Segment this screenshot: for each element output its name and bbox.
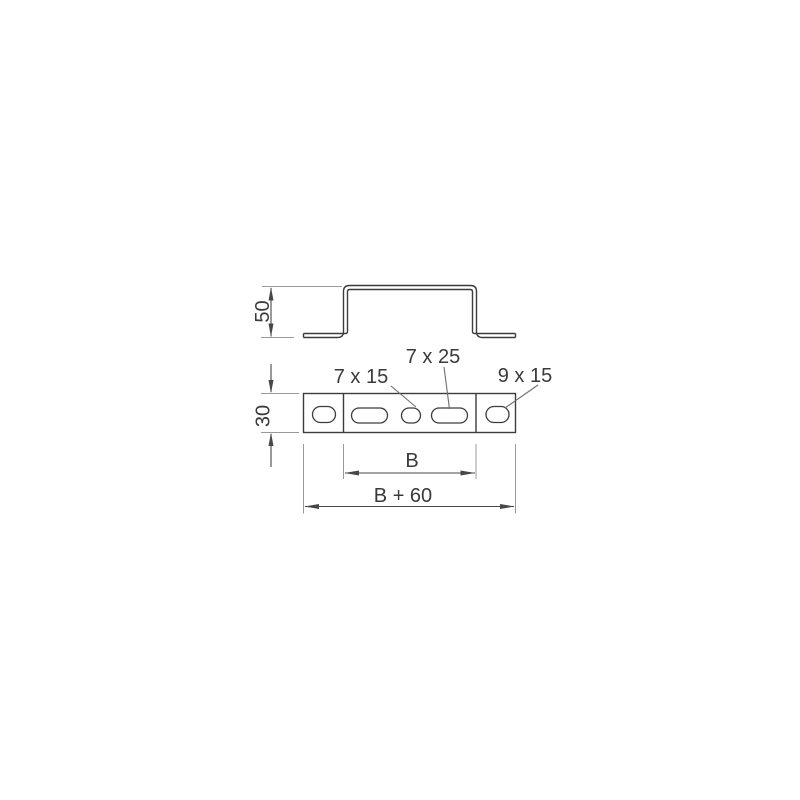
b60-dimension-label: B + 60 [374, 485, 432, 507]
b-arrow-right [461, 471, 476, 476]
drawing-canvas: 50 30 7 x 15 7 x 25 [0, 0, 800, 800]
profile-inner-contour [304, 290, 516, 334]
flange-arrow-up [269, 433, 274, 446]
small-slot-label: 7 x 15 [334, 366, 388, 388]
long-slot-hole-left [352, 408, 388, 423]
end-oval-hole-right [486, 407, 509, 423]
end-oval-label: 9 x 15 [498, 365, 552, 387]
b-arrow-left [344, 471, 359, 476]
height-arrow-up [269, 287, 274, 300]
dimension-inner-width-b: B [344, 444, 477, 479]
b60-arrow-left [304, 504, 319, 509]
long-slot-hole-right [432, 408, 468, 423]
b-dimension-label: B [405, 450, 418, 472]
small-slot-hole [402, 408, 421, 423]
flange-dimension-label: 30 [252, 405, 274, 427]
height-arrow-down [269, 324, 274, 337]
height-dimension-label: 50 [252, 300, 274, 322]
profile-outer-contour [304, 286, 516, 338]
flange-arrow-down [269, 380, 274, 393]
b60-arrow-right [500, 504, 515, 509]
bracket-dimension-drawing: 50 30 7 x 15 7 x 25 [0, 0, 800, 800]
dimension-height-50: 50 [252, 287, 342, 338]
dimension-flange-30: 30 [252, 364, 299, 467]
end-oval-hole-left [313, 407, 336, 423]
profile-view [304, 286, 516, 338]
front-view [304, 394, 516, 433]
long-slot-label: 7 x 25 [406, 346, 460, 368]
